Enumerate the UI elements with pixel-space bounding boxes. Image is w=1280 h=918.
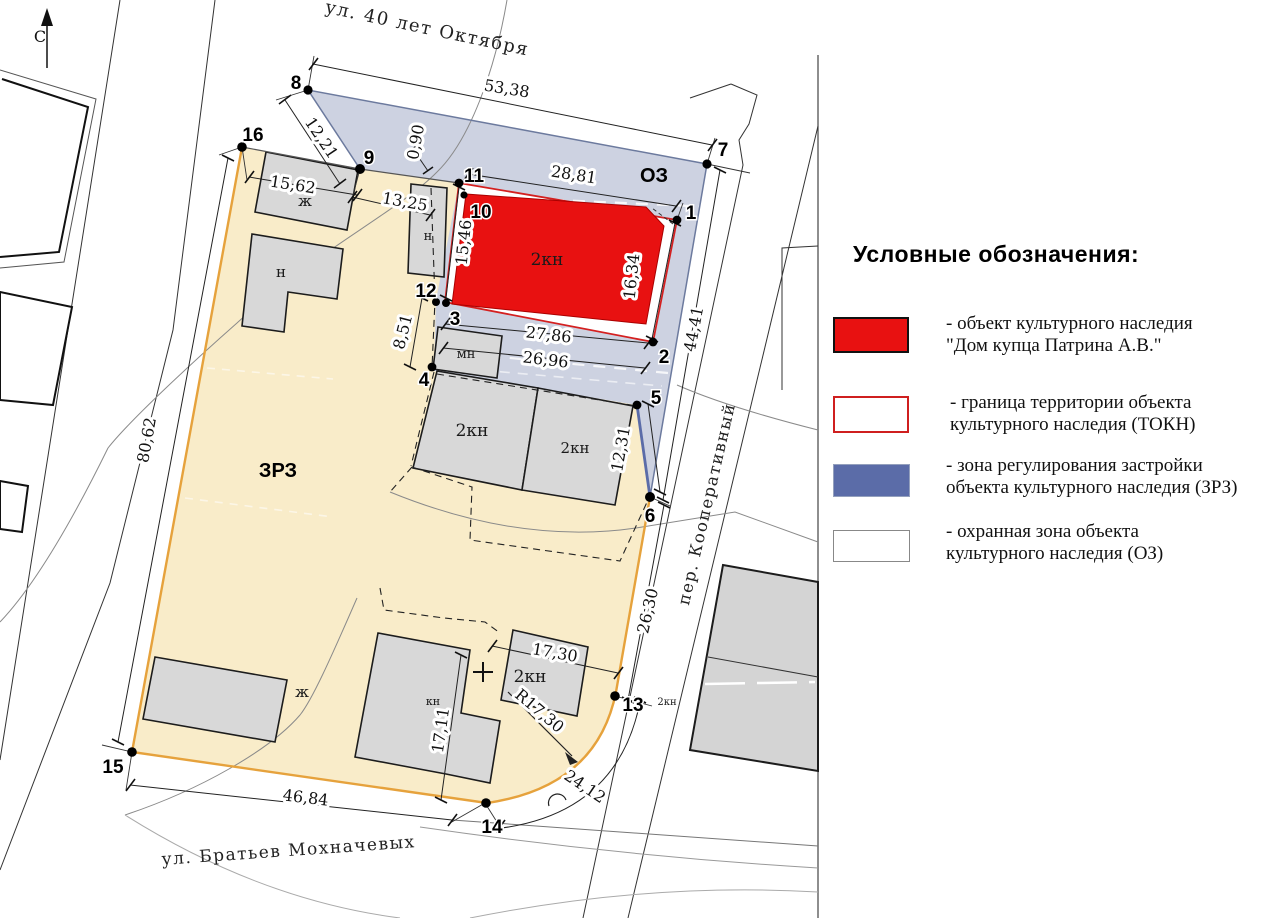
point-dot-15 [127,747,137,757]
dim-44-41: 44,41 [680,305,707,354]
point-label-6: 6 [645,506,656,527]
legend-title: Условные обозначения: [853,241,1139,268]
point-dot-6 [645,492,655,502]
street-top-label: ул. 40 лет Октября [323,0,531,61]
parcel-east [782,246,818,390]
point-dot-2 [649,338,658,347]
building-zh-bottom-label: ж [295,683,309,701]
legend-item-oz-line1: - охранная зона объекта [946,521,1276,543]
point-label-1: 1 [686,203,697,224]
point-dot-10 [460,191,467,198]
legend-item-zrz-line1: - зона регулирования застройки [946,455,1276,477]
white-building-1 [0,79,88,257]
dim-46-84: 46,84 [282,785,330,809]
legend-item-tokn-line1: - граница территории объекта [950,392,1280,414]
street-bottom-label: ул. Братьев Мохначевых [161,832,416,870]
legend-swatch-oz-zone [833,530,910,562]
legend-swatch-heritage-object [833,317,909,353]
dim-arc-symbol [548,794,566,806]
building-kn2-a-label: 2кн [456,421,489,441]
site-plan-document: С ул. 40 лет Октября пер. Кооперативный … [0,0,1280,918]
north-arrow-head [41,8,53,26]
building-mn-label: мн [457,347,476,362]
heritage-building-label: 2кн [531,250,564,270]
legend-swatch-tokn-boundary [833,396,909,433]
white-buildings [0,70,96,532]
dim-53-38: 53,38 [483,76,531,102]
legend-item-heritage-line1: - объект культурного наследия [946,313,1276,335]
building-kn-label: кн [426,695,440,708]
road-bottom-curve-2 [470,890,818,918]
legend-item-heritage-object: - объект культурного наследия "Дом купца… [946,313,1276,357]
point-dot-11 [455,179,464,188]
road-bottom-curve-1 [420,827,818,868]
point-label-12: 12 [415,281,436,302]
point-dot-7 [702,159,711,168]
building-n-mid-label: н [424,229,433,244]
zrz-zone-label: ЗРЗ [259,460,297,482]
dim-24-12: 24,12 [561,766,610,807]
legend-item-tokn-line2: культурного наследия (ТОКН) [950,414,1280,436]
contour-4 [677,385,818,430]
point-label-8: 8 [291,73,302,94]
oz-zone-label: ОЗ [640,165,668,187]
building-kn2-b-label: 2кн [561,439,590,457]
point-label-11: 11 [464,166,485,187]
white-building-2 [0,292,72,405]
point-label-7: 7 [718,140,729,161]
legend-item-oz-zone: - охранная зона объекта культурного насл… [946,521,1276,565]
point-label-9: 9 [364,148,375,169]
legend-item-zrz-zone: - зона регулирования застройки объекта к… [946,455,1276,499]
dim-80-62: 80,62 [133,416,160,464]
building-kn2-east-label: 2кн [657,697,677,708]
building-kn2-c-label: 2кн [514,667,547,687]
north-arrow: С [34,8,53,68]
point-dot-8 [303,85,312,94]
legend-swatch-zrz-zone [833,464,910,497]
point-label-15: 15 [102,757,124,778]
road-bottom-1 [452,820,818,846]
legend-item-heritage-line2: "Дом купца Патрина А.В." [946,335,1276,357]
point-dot-14 [481,798,491,808]
point-label-2: 2 [659,347,670,368]
point-label-10: 10 [470,202,491,223]
point-dot-1 [673,216,682,225]
point-dot-3 [442,299,450,307]
point-label-5: 5 [651,388,662,409]
building-n-top-label: н [276,263,286,281]
dim-26-30: 26,30 [633,586,662,635]
white-building-3 [0,481,28,532]
legend-item-tokn-boundary: - граница территории объекта культурного… [950,392,1280,436]
point-label-4: 4 [419,370,430,391]
legend-item-oz-line2: культурного наследия (ОЗ) [946,543,1276,565]
building-east-large [690,565,818,771]
legend-item-zrz-line2: объекта культурного наследия (ЗРЗ) [946,477,1276,499]
point-label-16: 16 [242,125,263,146]
point-dot-13 [610,691,620,701]
point-label-14: 14 [481,817,503,838]
point-label-3: 3 [450,309,461,330]
point-label-13: 13 [622,695,643,716]
north-label: С [34,27,46,46]
point-dot-5 [633,401,642,410]
